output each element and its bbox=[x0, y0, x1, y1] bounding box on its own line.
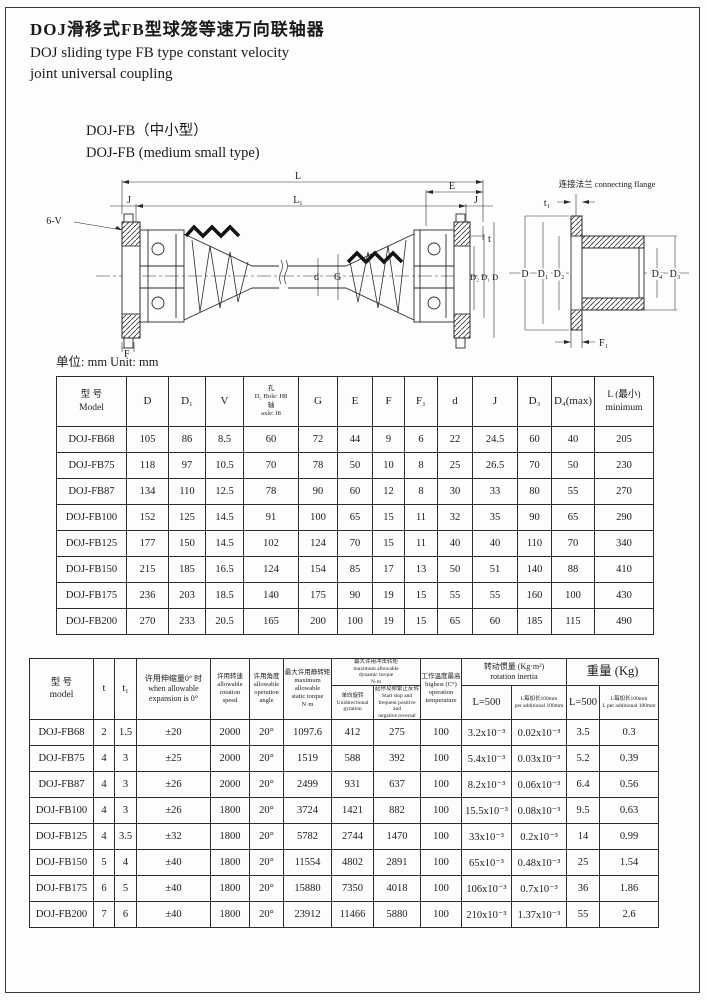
table-cell: 4 bbox=[94, 746, 115, 772]
col-weight-group: 重量 (Kg) bbox=[567, 659, 659, 686]
table-cell: 3 bbox=[115, 772, 137, 798]
table-cell: DOJ-FB68 bbox=[30, 720, 94, 746]
table-cell: 118 bbox=[127, 453, 169, 479]
performance-table: 型 号 model t t₁ 许用伸缩量0° 时 when allowable … bbox=[29, 658, 659, 928]
table-cell: ±26 bbox=[137, 798, 211, 824]
table-cell: 90 bbox=[518, 505, 552, 531]
table-cell: 55 bbox=[567, 902, 600, 928]
table-cell: 8 bbox=[405, 453, 438, 479]
table-cell: 7350 bbox=[332, 876, 374, 902]
flange-drawing: 连接法兰 connecting flange t₁ D D₁ D₂ D₄ D₃ … bbox=[495, 176, 697, 361]
dim-label-J-right: J bbox=[474, 195, 478, 206]
table-cell: 110 bbox=[518, 531, 552, 557]
table-cell: 931 bbox=[332, 772, 374, 798]
table-cell: 3 bbox=[115, 746, 137, 772]
subtitle-zh: DOJ-FB（中小型） bbox=[86, 120, 260, 142]
table-cell: 102 bbox=[244, 531, 299, 557]
table-cell: 20° bbox=[250, 824, 284, 850]
col-E: E bbox=[338, 377, 373, 427]
table-cell: 100 bbox=[421, 876, 462, 902]
table-cell: 3.5 bbox=[567, 720, 600, 746]
table-cell: 40 bbox=[473, 531, 518, 557]
table-cell: 65x10⁻³ bbox=[462, 850, 512, 876]
table-cell: 19 bbox=[373, 583, 405, 609]
col-inertia-l500: L=500 bbox=[462, 686, 512, 720]
table-cell: 15 bbox=[405, 583, 438, 609]
table-cell: 15 bbox=[405, 609, 438, 635]
flange-label-D4: D₄ bbox=[652, 269, 663, 280]
table-cell: DOJ-FB75 bbox=[57, 453, 127, 479]
table-cell: 0.63 bbox=[600, 798, 659, 824]
col-angle: 许用角度 allowable operation angle bbox=[250, 659, 284, 720]
col-F: F bbox=[373, 377, 405, 427]
dimensions-header-row: 型 号 Model D D₁ V 孔 D₂ Hole: H8 轴 axle: f… bbox=[57, 377, 654, 427]
table-cell: 25 bbox=[567, 850, 600, 876]
table-cell: 115 bbox=[552, 609, 595, 635]
table-cell: 3.5 bbox=[115, 824, 137, 850]
table-cell: 35 bbox=[473, 505, 518, 531]
table-cell: 50 bbox=[552, 453, 595, 479]
table-cell: 5 bbox=[115, 876, 137, 902]
col-D: D bbox=[127, 377, 169, 427]
table-cell: DOJ-FB125 bbox=[30, 824, 94, 850]
table-cell: 4 bbox=[115, 850, 137, 876]
table-cell: DOJ-FB68 bbox=[57, 427, 127, 453]
table-cell: 55 bbox=[438, 583, 473, 609]
table-cell: 6 bbox=[405, 427, 438, 453]
table-cell: 0.2x10⁻³ bbox=[512, 824, 567, 850]
table-cell: 100 bbox=[299, 505, 338, 531]
table-cell: 185 bbox=[169, 557, 206, 583]
col-dynamic-torque-group: 最大许用冲击转矩 maximum allowable dynamic torqu… bbox=[332, 659, 421, 686]
table-cell: 1.37x10⁻³ bbox=[512, 902, 567, 928]
table-cell: 2000 bbox=[211, 746, 250, 772]
table-cell: 50 bbox=[338, 453, 373, 479]
table-cell: 60 bbox=[473, 609, 518, 635]
table-cell: 2000 bbox=[211, 772, 250, 798]
table-cell: 0.39 bbox=[600, 746, 659, 772]
table-cell: 882 bbox=[374, 798, 421, 824]
table-cell: 152 bbox=[127, 505, 169, 531]
table-cell: 1800 bbox=[211, 850, 250, 876]
table-cell: 55 bbox=[473, 583, 518, 609]
table-cell: 185 bbox=[518, 609, 552, 635]
table-cell: DOJ-FB150 bbox=[30, 850, 94, 876]
table-cell: 124 bbox=[244, 557, 299, 583]
table-cell: 290 bbox=[595, 505, 654, 531]
table-row: DOJ-FB15054±40180020°115544802289110065x… bbox=[30, 850, 659, 876]
table-cell: 270 bbox=[127, 609, 169, 635]
table-cell: DOJ-FB75 bbox=[30, 746, 94, 772]
flange-label-F1: F₁ bbox=[599, 338, 608, 349]
table-cell: 30 bbox=[438, 479, 473, 505]
col-expansion: 许用伸缩量0° 时 when allowable expansion is 0° bbox=[137, 659, 211, 720]
table-cell: 11 bbox=[405, 531, 438, 557]
table-cell: 20° bbox=[250, 876, 284, 902]
table-row: DOJ-FB12517715014.5102124701511404011070… bbox=[57, 531, 654, 557]
flange-label-D1: D₁ bbox=[538, 269, 549, 280]
table-cell: 430 bbox=[595, 583, 654, 609]
col-speed: 许用转速 allowable rotation speed bbox=[211, 659, 250, 720]
table-row: DOJ-FB6821.5±20200020°1097.64122751003.2… bbox=[30, 720, 659, 746]
table-cell: 1.54 bbox=[600, 850, 659, 876]
table-cell: 16.5 bbox=[206, 557, 244, 583]
dimensions-table: 型 号 Model D D₁ V 孔 D₂ Hole: H8 轴 axle: f… bbox=[56, 376, 654, 635]
table-cell: 70 bbox=[552, 531, 595, 557]
table-cell: 9.5 bbox=[567, 798, 600, 824]
flange-label-D2: D₂ bbox=[554, 269, 565, 280]
table-cell: 88 bbox=[552, 557, 595, 583]
title-block: DOJ滑移式FB型球笼等速万向联轴器 DOJ sliding type FB t… bbox=[30, 18, 325, 86]
col-L: L (最小) minimum bbox=[595, 377, 654, 427]
col-temperature: 工作温度最高 highest (C°) operation temperatur… bbox=[421, 659, 462, 720]
col-unidirectional: 单向旋转 Unidirectional gyration bbox=[332, 686, 374, 720]
table-cell: 165 bbox=[244, 609, 299, 635]
table-cell: 44 bbox=[338, 427, 373, 453]
table-cell: 90 bbox=[299, 479, 338, 505]
table-cell: DOJ-FB100 bbox=[57, 505, 127, 531]
table-cell: ±40 bbox=[137, 876, 211, 902]
table-cell: DOJ-FB175 bbox=[30, 876, 94, 902]
table-cell: 5 bbox=[94, 850, 115, 876]
table-cell: 1421 bbox=[332, 798, 374, 824]
table-cell: 20° bbox=[250, 746, 284, 772]
table-cell: 134 bbox=[127, 479, 169, 505]
table-cell: 175 bbox=[299, 583, 338, 609]
table-cell: 215 bbox=[127, 557, 169, 583]
table-cell: 65 bbox=[438, 609, 473, 635]
col-D4: D₄(max) bbox=[552, 377, 595, 427]
table-cell: 177 bbox=[127, 531, 169, 557]
table-cell: 0.56 bbox=[600, 772, 659, 798]
table-cell: 60 bbox=[244, 427, 299, 453]
table-cell: 0.08x10⁻³ bbox=[512, 798, 567, 824]
table-cell: 6 bbox=[94, 876, 115, 902]
table-cell: 4018 bbox=[374, 876, 421, 902]
table-cell: 1.5 bbox=[115, 720, 137, 746]
table-cell: 124 bbox=[299, 531, 338, 557]
table-cell: 14 bbox=[567, 824, 600, 850]
table-cell: 33x10⁻³ bbox=[462, 824, 512, 850]
table-cell: 11 bbox=[405, 505, 438, 531]
table-cell: 25 bbox=[438, 453, 473, 479]
table-cell: DOJ-FB150 bbox=[57, 557, 127, 583]
table-cell: 19 bbox=[373, 609, 405, 635]
table-cell: 86 bbox=[169, 427, 206, 453]
table-row: DOJ-FB20027023320.5165200100191565601851… bbox=[57, 609, 654, 635]
table-cell: 20° bbox=[250, 720, 284, 746]
unit-note: 单位: mm Unit: mm bbox=[56, 351, 158, 370]
table-cell: 14.5 bbox=[206, 505, 244, 531]
table-cell: ±20 bbox=[137, 720, 211, 746]
flange-label-D: D bbox=[521, 269, 528, 280]
table-cell: 11554 bbox=[284, 850, 332, 876]
table-cell: 160 bbox=[518, 583, 552, 609]
table-row: DOJ-FB15021518516.5124154851713505114088… bbox=[57, 557, 654, 583]
dim-label-L: L bbox=[295, 171, 301, 182]
col-static-torque: 最大许用静转矩 maximum allowable static torque … bbox=[284, 659, 332, 720]
table-cell: 40 bbox=[552, 427, 595, 453]
table-cell: 3724 bbox=[284, 798, 332, 824]
table-cell: 6 bbox=[115, 902, 137, 928]
page-title-en-1: DOJ sliding type FB type constant veloci… bbox=[30, 43, 325, 65]
table-cell: DOJ-FB200 bbox=[57, 609, 127, 635]
table-cell: 20.5 bbox=[206, 609, 244, 635]
table-cell: 2891 bbox=[374, 850, 421, 876]
table-cell: 210x10⁻³ bbox=[462, 902, 512, 928]
col-G: G bbox=[299, 377, 338, 427]
table-row: DOJ-FB17523620318.5140175901915555516010… bbox=[57, 583, 654, 609]
subtitle-en: DOJ-FB (medium small type) bbox=[86, 142, 260, 164]
table-cell: 233 bbox=[169, 609, 206, 635]
table-cell: 15 bbox=[373, 531, 405, 557]
table-cell: 8 bbox=[405, 479, 438, 505]
table-cell: 91 bbox=[244, 505, 299, 531]
table-cell: 40 bbox=[438, 531, 473, 557]
table-cell: 20° bbox=[250, 902, 284, 928]
col-D1: D₁ bbox=[169, 377, 206, 427]
table-cell: 60 bbox=[518, 427, 552, 453]
table-cell: 0.03x10⁻³ bbox=[512, 746, 567, 772]
table-cell: 32 bbox=[438, 505, 473, 531]
table-cell: 78 bbox=[299, 453, 338, 479]
table-cell: 85 bbox=[338, 557, 373, 583]
table-cell: 15880 bbox=[284, 876, 332, 902]
table-cell: DOJ-FB100 bbox=[30, 798, 94, 824]
col-model: 型 号 model bbox=[30, 659, 94, 720]
table-cell: 5880 bbox=[374, 902, 421, 928]
table-cell: 97 bbox=[169, 453, 206, 479]
table-cell: 0.02x10⁻³ bbox=[512, 720, 567, 746]
dim-label-d: d bbox=[314, 272, 319, 283]
table-cell: DOJ-FB87 bbox=[57, 479, 127, 505]
flange-label-t1: t₁ bbox=[544, 198, 550, 209]
table-cell: 0.7x10⁻³ bbox=[512, 876, 567, 902]
table-cell: 1470 bbox=[374, 824, 421, 850]
dim-label-t: t bbox=[488, 234, 491, 245]
table-cell: 1519 bbox=[284, 746, 332, 772]
table-cell: 4 bbox=[94, 824, 115, 850]
table-cell: 60 bbox=[338, 479, 373, 505]
table-cell: 588 bbox=[332, 746, 374, 772]
col-d: d bbox=[438, 377, 473, 427]
table-cell: 10.5 bbox=[206, 453, 244, 479]
table-cell: 70 bbox=[244, 453, 299, 479]
table-cell: 3 bbox=[115, 798, 137, 824]
table-row: DOJ-FB12543.5±32180020°57822744147010033… bbox=[30, 824, 659, 850]
page-title-zh: DOJ滑移式FB型球笼等速万向联轴器 bbox=[30, 18, 325, 43]
table-cell: 230 bbox=[595, 453, 654, 479]
table-row: DOJ-FB751189710.57078501082526.57050230 bbox=[57, 453, 654, 479]
table-cell: 26.5 bbox=[473, 453, 518, 479]
table-cell: 1800 bbox=[211, 798, 250, 824]
table-cell: 0.06x10⁻³ bbox=[512, 772, 567, 798]
table-cell: 78 bbox=[244, 479, 299, 505]
table-cell: 392 bbox=[374, 746, 421, 772]
table-cell: 8.2x10⁻³ bbox=[462, 772, 512, 798]
table-cell: 2744 bbox=[332, 824, 374, 850]
table-row: DOJ-FB20076±40180020°2391211466588010021… bbox=[30, 902, 659, 928]
table-cell: 1800 bbox=[211, 902, 250, 928]
table-cell: 100 bbox=[552, 583, 595, 609]
col-weight-per100: L每加长100mm L per additional 100mm bbox=[600, 686, 659, 720]
table-cell: 6.4 bbox=[567, 772, 600, 798]
table-cell: 4 bbox=[94, 798, 115, 824]
table-cell: 5.4x10⁻³ bbox=[462, 746, 512, 772]
flange-title: 连接法兰 connecting flange bbox=[559, 179, 656, 189]
table-row: DOJ-FB10043±26180020°3724142188210015.5x… bbox=[30, 798, 659, 824]
table-cell: 50 bbox=[438, 557, 473, 583]
table-row: DOJ-FB10015212514.5911006515113235906529… bbox=[57, 505, 654, 531]
table-cell: 0.3 bbox=[600, 720, 659, 746]
table-cell: 20° bbox=[250, 850, 284, 876]
table-cell: 140 bbox=[518, 557, 552, 583]
table-cell: 8.5 bbox=[206, 427, 244, 453]
catalog-page: DOJ滑移式FB型球笼等速万向联轴器 DOJ sliding type FB t… bbox=[0, 0, 707, 1000]
table-cell: ±40 bbox=[137, 850, 211, 876]
table-cell: 70 bbox=[338, 531, 373, 557]
col-F1: F₁ bbox=[405, 377, 438, 427]
table-cell: 275 bbox=[374, 720, 421, 746]
table-cell: 637 bbox=[374, 772, 421, 798]
table-cell: 2.6 bbox=[600, 902, 659, 928]
table-cell: 106x10⁻³ bbox=[462, 876, 512, 902]
table-cell: 20° bbox=[250, 772, 284, 798]
table-row: DOJ-FB17565±40180020°1588073504018100106… bbox=[30, 876, 659, 902]
col-J: J bbox=[473, 377, 518, 427]
dim-label-E: E bbox=[449, 181, 455, 192]
table-cell: 1800 bbox=[211, 824, 250, 850]
table-cell: 236 bbox=[127, 583, 169, 609]
table-cell: ±32 bbox=[137, 824, 211, 850]
table-cell: DOJ-FB175 bbox=[57, 583, 127, 609]
col-weight-l500: L=500 bbox=[567, 686, 600, 720]
table-cell: 100 bbox=[421, 824, 462, 850]
table-cell: 4 bbox=[94, 772, 115, 798]
table-cell: 100 bbox=[338, 609, 373, 635]
table-cell: 154 bbox=[299, 557, 338, 583]
table-cell: 72 bbox=[299, 427, 338, 453]
table-cell: 13 bbox=[405, 557, 438, 583]
table-cell: 1800 bbox=[211, 876, 250, 902]
table-cell: 33 bbox=[473, 479, 518, 505]
dim-label-G: G bbox=[334, 272, 341, 283]
table-cell: 2499 bbox=[284, 772, 332, 798]
table-cell: 12 bbox=[373, 479, 405, 505]
table-cell: 490 bbox=[595, 609, 654, 635]
col-t1: t₁ bbox=[115, 659, 137, 720]
table-cell: 150 bbox=[169, 531, 206, 557]
table-row: DOJ-FB8713411012.578906012830338055270 bbox=[57, 479, 654, 505]
table-cell: 7 bbox=[94, 902, 115, 928]
table-cell: 15.5x10⁻³ bbox=[462, 798, 512, 824]
table-cell: 100 bbox=[421, 772, 462, 798]
table-cell: 200 bbox=[299, 609, 338, 635]
table-cell: 205 bbox=[595, 427, 654, 453]
table-cell: 1097.6 bbox=[284, 720, 332, 746]
table-cell: ±26 bbox=[137, 772, 211, 798]
table-cell: 100 bbox=[421, 746, 462, 772]
table-cell: 23912 bbox=[284, 902, 332, 928]
col-model: 型 号 Model bbox=[57, 377, 127, 427]
table-cell: 140 bbox=[244, 583, 299, 609]
table-cell: 55 bbox=[552, 479, 595, 505]
table-cell: 5.2 bbox=[567, 746, 600, 772]
table-cell: 2 bbox=[94, 720, 115, 746]
table-cell: 51 bbox=[473, 557, 518, 583]
col-D2: 孔 D₂ Hole: H8 轴 axle: f8 bbox=[244, 377, 299, 427]
table-cell: 70 bbox=[518, 453, 552, 479]
table-cell: 340 bbox=[595, 531, 654, 557]
dim-label-D2: D₂ bbox=[470, 272, 479, 282]
table-cell: 11466 bbox=[332, 902, 374, 928]
col-inertia-group: 转动惯量 (Kg·m²) rotation inertia bbox=[462, 659, 567, 686]
table-cell: 15 bbox=[373, 505, 405, 531]
table-cell: DOJ-FB200 bbox=[30, 902, 94, 928]
table-cell: ±25 bbox=[137, 746, 211, 772]
table-cell: 4802 bbox=[332, 850, 374, 876]
table-cell: 0.99 bbox=[600, 824, 659, 850]
col-D3: D₃ bbox=[518, 377, 552, 427]
table-cell: 1.86 bbox=[600, 876, 659, 902]
table-cell: 80 bbox=[518, 479, 552, 505]
col-reversal: 起停及频繁正反转 Start stop and frequent positiv… bbox=[374, 686, 421, 720]
performance-header-row-1: 型 号 model t t₁ 许用伸缩量0° 时 when allowable … bbox=[30, 659, 659, 686]
dim-label-D1: D₁ bbox=[481, 272, 490, 282]
table-cell: 5782 bbox=[284, 824, 332, 850]
table-cell: 90 bbox=[338, 583, 373, 609]
table-row: DOJ-FB68105868.5607244962224.56040205 bbox=[57, 427, 654, 453]
table-cell: 100 bbox=[421, 850, 462, 876]
dim-label-6V: 6-V bbox=[46, 216, 62, 227]
col-t: t bbox=[94, 659, 115, 720]
dim-label-J-left: J bbox=[127, 195, 131, 206]
subtitle-block: DOJ-FB（中小型） DOJ-FB (medium small type) bbox=[86, 120, 260, 165]
assembly-drawing: L L₁ E J J 6-V t d G F D₂ D₁ D bbox=[36, 170, 498, 358]
table-cell: 65 bbox=[552, 505, 595, 531]
table-cell: 110 bbox=[169, 479, 206, 505]
table-cell: 65 bbox=[338, 505, 373, 531]
table-cell: 125 bbox=[169, 505, 206, 531]
table-cell: 105 bbox=[127, 427, 169, 453]
table-cell: 3.2x10⁻³ bbox=[462, 720, 512, 746]
table-row: DOJ-FB7543±25200020°15195883921005.4x10⁻… bbox=[30, 746, 659, 772]
table-cell: 17 bbox=[373, 557, 405, 583]
page-title-en-2: joint universal coupling bbox=[30, 64, 325, 86]
table-row: DOJ-FB8743±26200020°24999316371008.2x10⁻… bbox=[30, 772, 659, 798]
table-cell: 9 bbox=[373, 427, 405, 453]
table-cell: ±40 bbox=[137, 902, 211, 928]
table-cell: 12.5 bbox=[206, 479, 244, 505]
table-cell: 410 bbox=[595, 557, 654, 583]
table-cell: 412 bbox=[332, 720, 374, 746]
table-cell: 18.5 bbox=[206, 583, 244, 609]
table-cell: 270 bbox=[595, 479, 654, 505]
table-cell: 203 bbox=[169, 583, 206, 609]
table-cell: 24.5 bbox=[473, 427, 518, 453]
table-cell: 14.5 bbox=[206, 531, 244, 557]
table-cell: 100 bbox=[421, 902, 462, 928]
table-cell: 10 bbox=[373, 453, 405, 479]
flange-label-D3: D₃ bbox=[670, 269, 681, 280]
table-cell: DOJ-FB87 bbox=[30, 772, 94, 798]
table-cell: 36 bbox=[567, 876, 600, 902]
table-cell: DOJ-FB125 bbox=[57, 531, 127, 557]
dim-label-L1: L₁ bbox=[293, 195, 303, 206]
table-cell: 20° bbox=[250, 798, 284, 824]
col-V: V bbox=[206, 377, 244, 427]
table-cell: 2000 bbox=[211, 720, 250, 746]
